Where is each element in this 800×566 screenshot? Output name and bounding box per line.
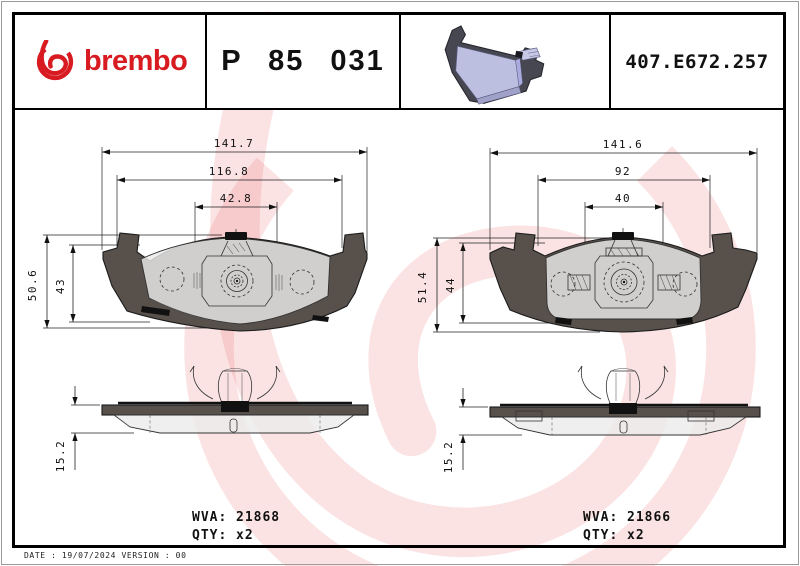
- brand-cell: brembo: [15, 15, 207, 108]
- left-qty-value: x2: [236, 528, 254, 543]
- title-block: brembo P 85 031 407.E672.257: [15, 15, 783, 110]
- left-qty-label: QTY:: [192, 528, 227, 543]
- dim-right-height-overall: 51.4: [416, 271, 429, 304]
- right-top-tab: [612, 232, 634, 240]
- datasheet-page: 141.7 116.8 42.8 50.6 43 15.2: [0, 0, 800, 566]
- left-wva-value: 21868: [236, 510, 280, 525]
- dim-left-width-inner: 116.8: [209, 165, 250, 178]
- reference-code-cell: 407.E672.257: [611, 15, 783, 108]
- dim-right-thickness: 15.2: [442, 441, 455, 474]
- part-number: P 85 031: [221, 45, 385, 78]
- dim-left-width-center: 42.8: [220, 192, 253, 205]
- dim-right-height-friction: 44: [444, 277, 457, 293]
- dim-right-width-overall: 141.6: [603, 138, 644, 151]
- brake-pad-3d-icon: [430, 18, 580, 106]
- right-friction-profile: [502, 417, 746, 435]
- right-clip-block: [609, 403, 637, 414]
- left-pad-front-view: [103, 232, 367, 331]
- dim-left-height-friction: 43: [54, 278, 67, 294]
- right-wva-label: WVA:: [583, 510, 618, 525]
- left-wva-label: WVA:: [192, 510, 227, 525]
- dim-left-height-overall: 50.6: [26, 269, 39, 302]
- dim-right-width-center: 40: [615, 192, 631, 205]
- footer-date-version: DATE : 19/07/2024 VERSION : 00: [24, 551, 187, 560]
- brembo-logo-icon: [33, 40, 77, 84]
- left-bottom-clip-2: [312, 315, 329, 322]
- product-photo-cell: [401, 15, 611, 108]
- brand-wordmark: brembo: [84, 45, 187, 78]
- dim-left-thickness: 15.2: [54, 440, 67, 473]
- right-qty-value: x2: [627, 528, 645, 543]
- dim-right-width-inner: 92: [615, 165, 631, 178]
- right-qty-label: QTY:: [583, 528, 618, 543]
- left-top-tab: [225, 232, 247, 240]
- right-wva-value: 21866: [627, 510, 671, 525]
- dim-left-width-overall: 141.7: [214, 137, 255, 150]
- part-number-cell: P 85 031: [207, 15, 401, 108]
- left-clip-block: [221, 401, 249, 412]
- reference-code: 407.E672.257: [625, 51, 768, 73]
